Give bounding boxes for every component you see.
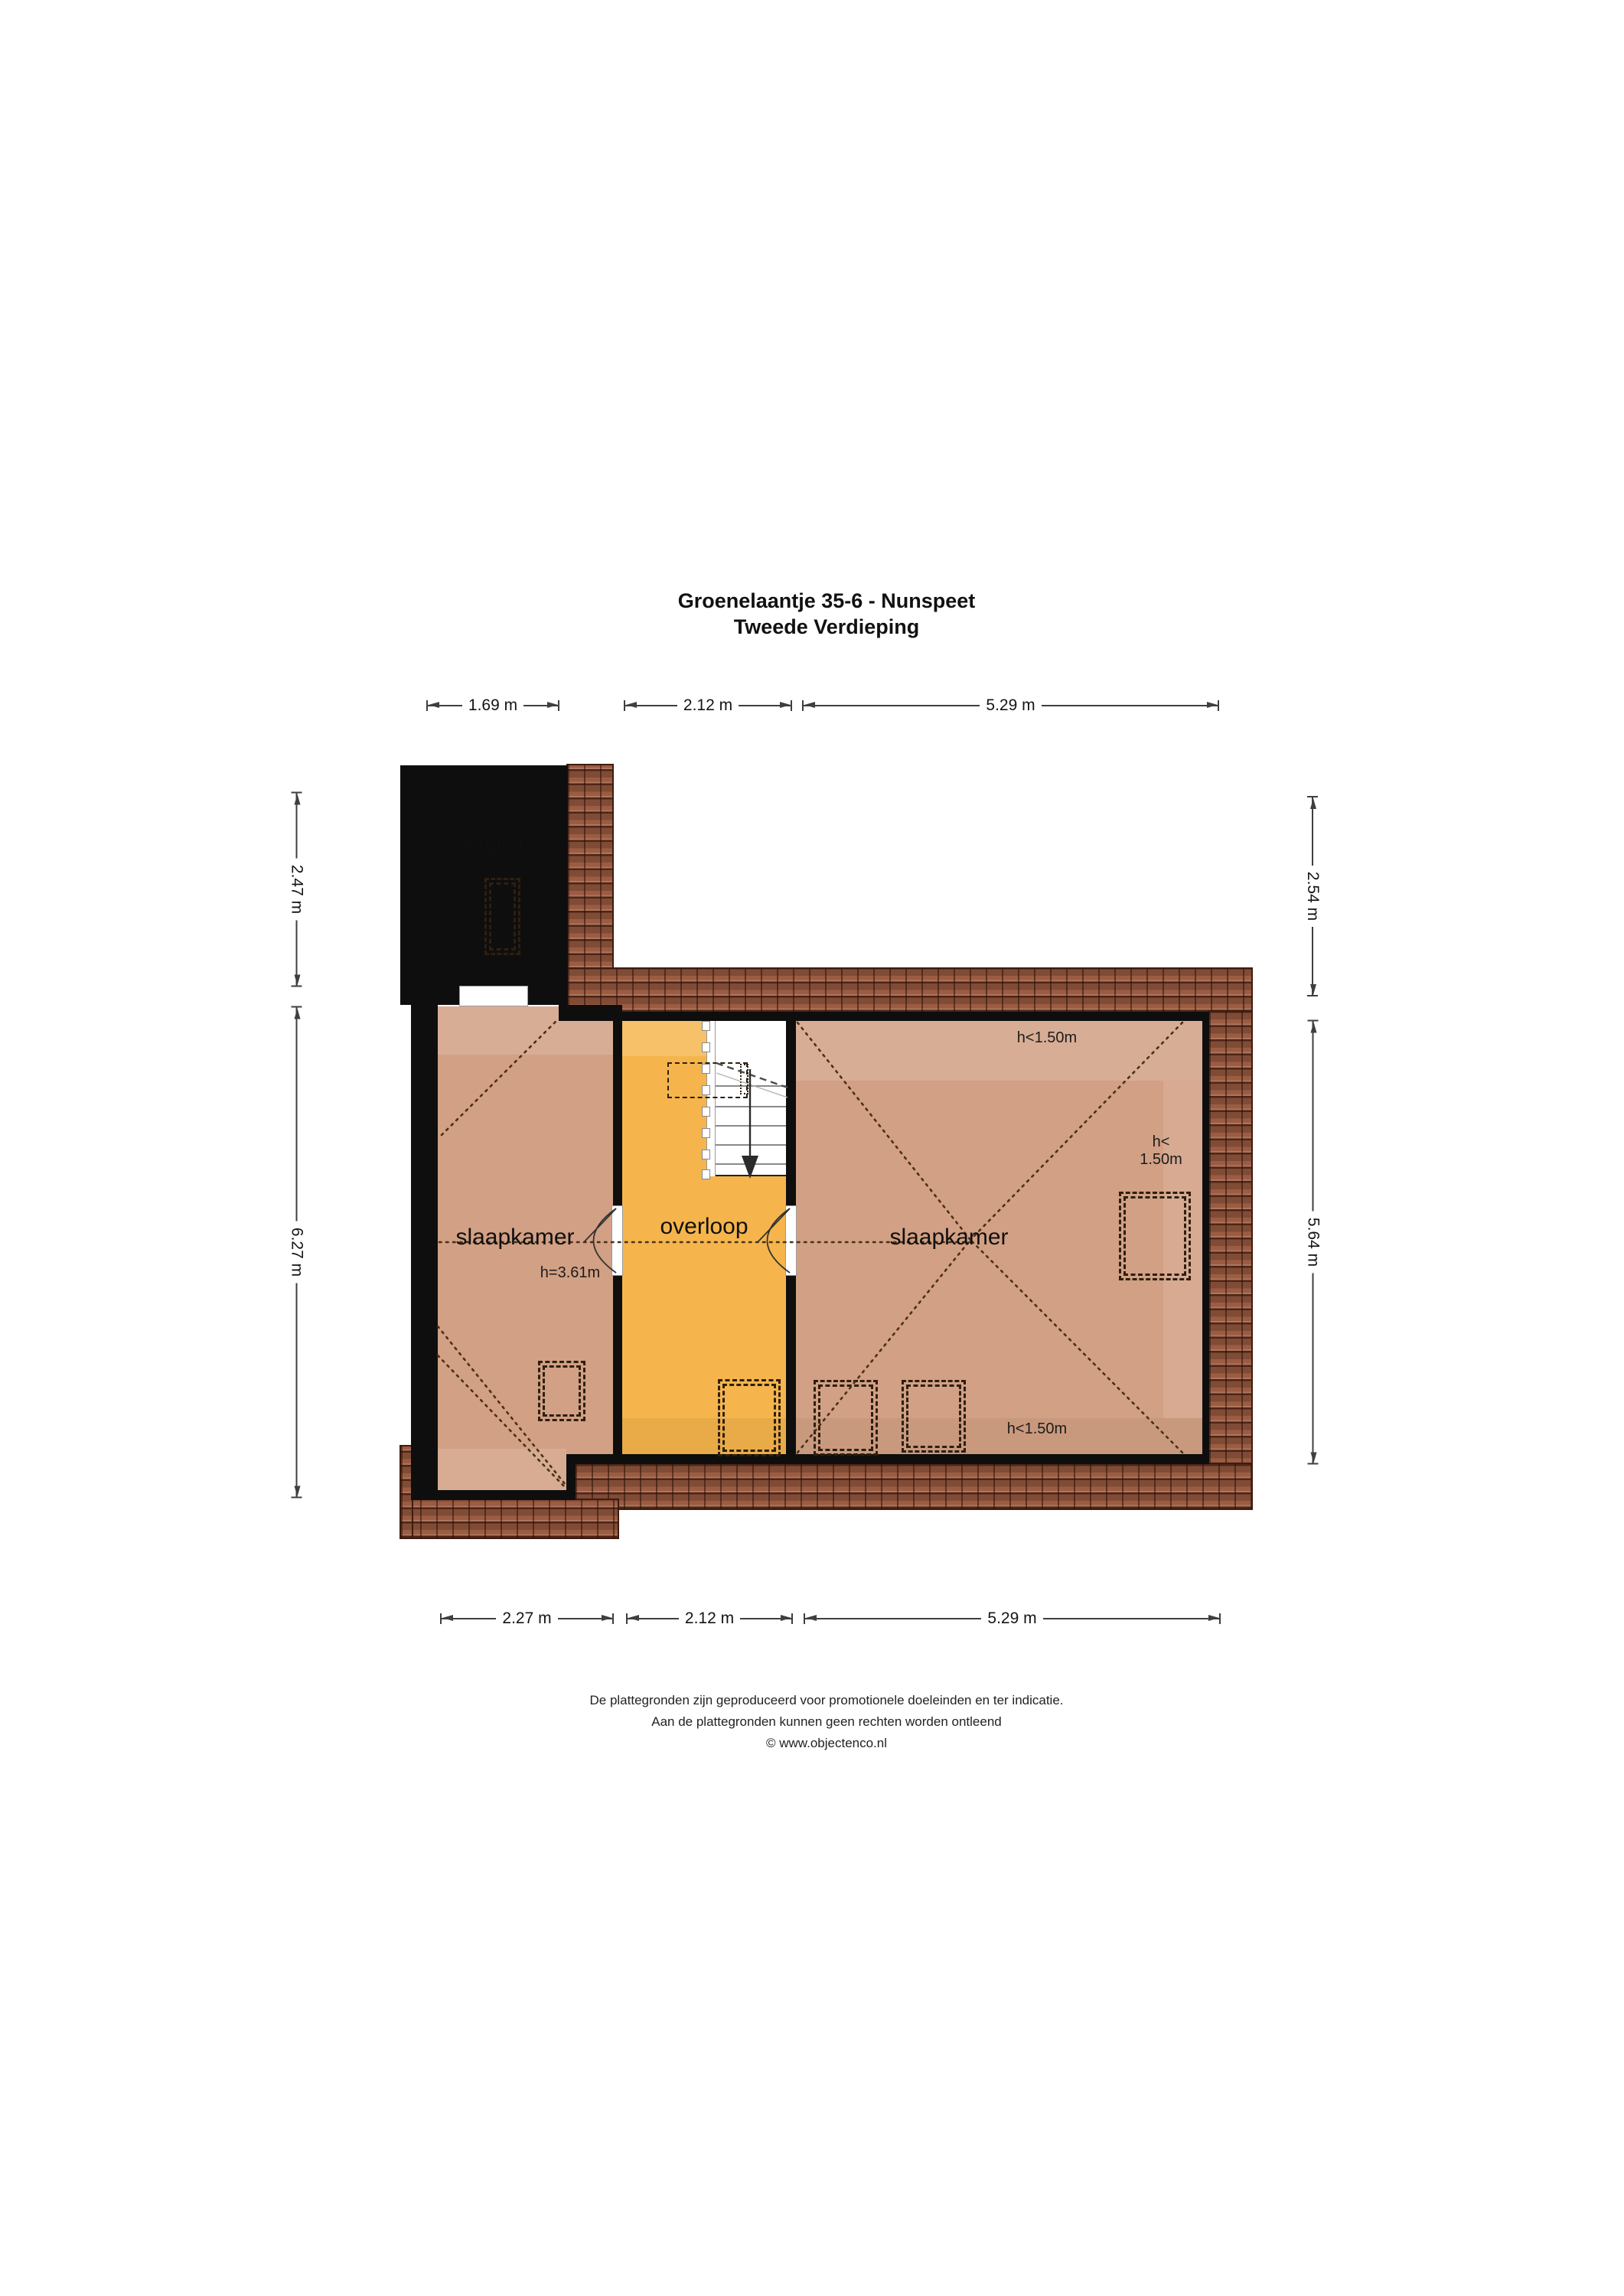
room-label-bedroom-left: slaapkamer (439, 1225, 592, 1251)
room-label-berging: berging (429, 833, 551, 856)
dimension-right-1: 2.54 m (1303, 796, 1322, 996)
roof-window-landing-bottom (718, 1379, 781, 1456)
door-opening-berging (459, 986, 528, 1006)
dimension-label: 5.29 m (981, 1609, 1042, 1629)
staircase (716, 1021, 786, 1176)
dimension-bottom-3: 5.29 m (804, 1609, 1221, 1629)
dimension-label: 2.54 m (1303, 866, 1322, 927)
railing-post (702, 1107, 710, 1117)
floorplan-page: Groenelaantje 35-6 - Nunspeet Tweede Ver… (0, 0, 1624, 2296)
dimension-bottom-1: 2.27 m (440, 1609, 614, 1629)
roof-tiles-strip-right (1209, 1012, 1251, 1508)
height-note-bedroom-left: h=3.61m (509, 1264, 631, 1282)
stair-tread (716, 1125, 786, 1127)
footer-disclaimer-line2: Aan de plattegronden kunnen geen rechten… (367, 1711, 1286, 1733)
railing-post (702, 1169, 710, 1179)
roof-tiles-sliver-left (401, 1446, 412, 1538)
door-opening-bedroom-right (785, 1205, 797, 1276)
dimension-top-3: 5.29 m (802, 696, 1219, 716)
roof-window-bedroom-left (538, 1361, 585, 1421)
roof-tiles-band-top (568, 969, 1251, 1012)
roof-window-bedroom-right-a (814, 1380, 878, 1456)
roof-window-berging (484, 878, 520, 955)
dimension-top-1: 1.69 m (426, 696, 559, 716)
railing-post (702, 1042, 710, 1052)
room-label-bedroom-right: slaapkamer (865, 1225, 1033, 1251)
stair-tread (716, 1106, 786, 1107)
dimension-label: 2.47 m (287, 859, 307, 920)
railing-post (702, 1150, 710, 1159)
page-subtitle: Tweede Verdieping (367, 614, 1286, 640)
roof-window-bedroom-right-side (1119, 1192, 1191, 1280)
dimension-bottom-2: 2.12 m (626, 1609, 793, 1629)
dimension-top-2: 2.12 m (624, 696, 792, 716)
dimension-label: 6.27 m (287, 1221, 307, 1283)
roof-tiles-band-bottom-left (404, 1500, 618, 1538)
dimension-left-1: 2.47 m (287, 792, 307, 987)
wall-main-right (1202, 1012, 1209, 1464)
roof-window-bedroom-right-b (902, 1380, 966, 1453)
page-title: Groenelaantje 35-6 - Nunspeet (367, 588, 1286, 614)
wall-main-left (411, 1005, 438, 1500)
dimension-label: 2.12 m (679, 1609, 740, 1629)
dimension-label: 2.27 m (496, 1609, 557, 1629)
ceiling-shade (438, 1449, 566, 1490)
dimension-label: 1.69 m (462, 696, 523, 716)
wall-main-top (568, 1012, 1209, 1021)
wall-bottom-left (411, 1490, 576, 1500)
stair-tread (716, 1163, 786, 1165)
height-note-bottom: h<1.50m (960, 1420, 1114, 1438)
dimension-left-2: 6.27 m (287, 1006, 307, 1499)
railing-post (702, 1128, 710, 1138)
dimension-label: 5.64 m (1303, 1212, 1323, 1273)
height-note-right-line1: h< (1115, 1133, 1207, 1151)
room-label-landing: overloop (628, 1214, 781, 1240)
stair-tread (716, 1144, 786, 1146)
dimension-label: 2.12 m (677, 696, 739, 716)
height-note-right-line2: 1.50m (1115, 1151, 1207, 1169)
dimension-right-2: 5.64 m (1303, 1020, 1323, 1465)
wall-bottom-right (566, 1454, 1209, 1464)
railing-post (702, 1021, 710, 1031)
roof-window-landing (667, 1062, 748, 1098)
height-note-top: h<1.50m (970, 1029, 1123, 1047)
footer-disclaimer-line1: De plattegronden zijn geproduceerd voor … (367, 1690, 1286, 1711)
roof-tiles-band-bottom-right (576, 1464, 1251, 1508)
roof-window-detail (740, 1064, 748, 1094)
footer-copyright: © www.objectenco.nl (367, 1733, 1286, 1754)
dimension-label: 5.29 m (980, 696, 1041, 716)
